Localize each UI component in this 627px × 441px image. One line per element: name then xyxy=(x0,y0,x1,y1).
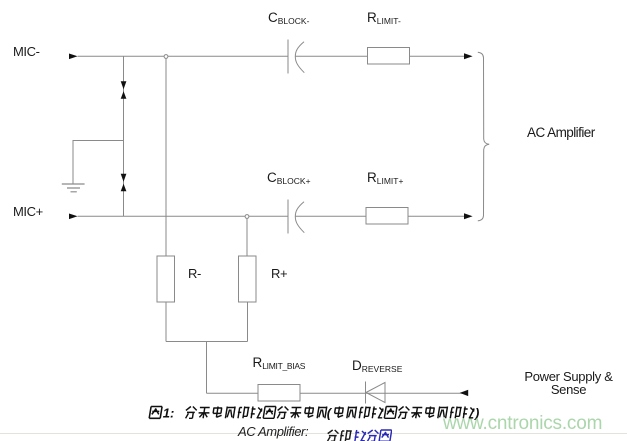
svg-text:1:: 1: xyxy=(162,405,174,420)
svg-text:(: ( xyxy=(326,405,332,420)
